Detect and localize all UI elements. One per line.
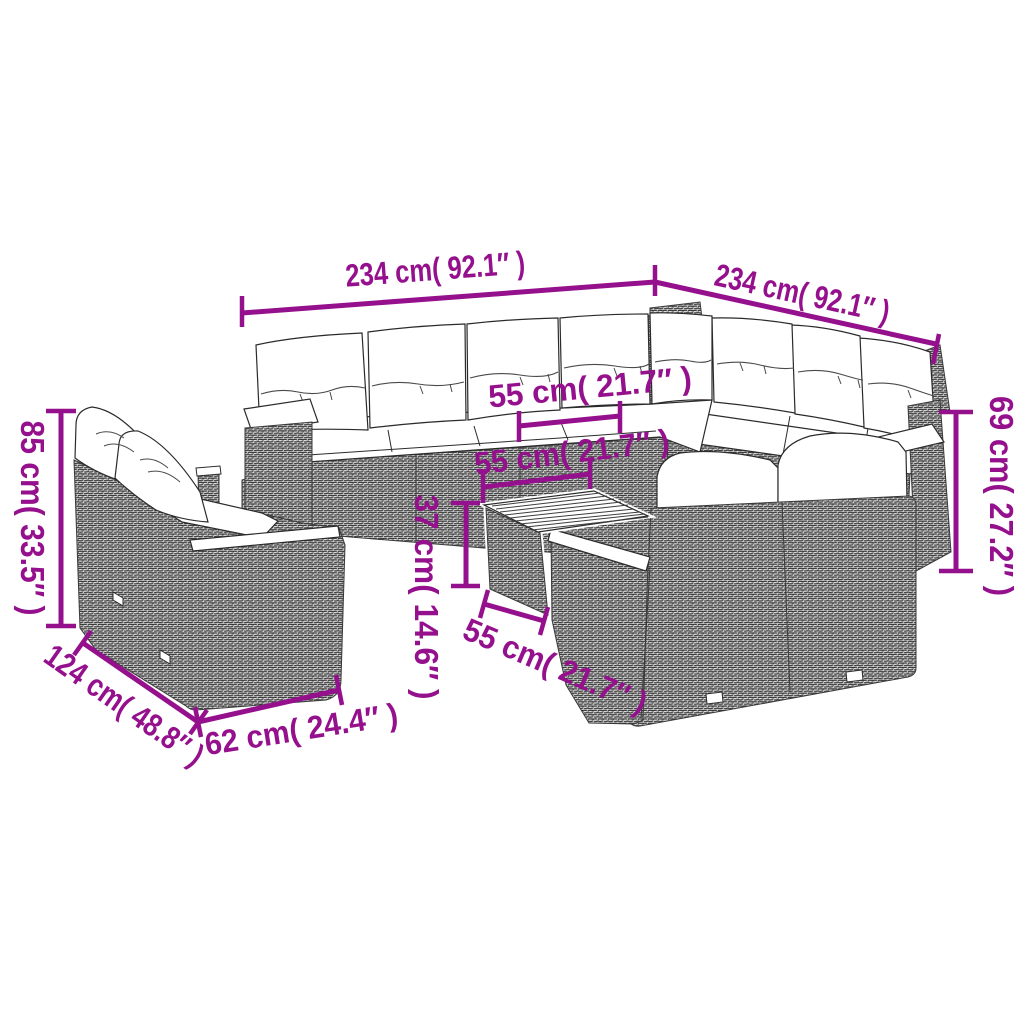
svg-text:37 cm( 14.6″ ): 37 cm( 14.6″ ) bbox=[408, 495, 445, 700]
svg-text:85 cm( 33.5″ ): 85 cm( 33.5″ ) bbox=[14, 421, 51, 616]
svg-text:69 cm( 27.2″ ): 69 cm( 27.2″ ) bbox=[983, 396, 1020, 596]
